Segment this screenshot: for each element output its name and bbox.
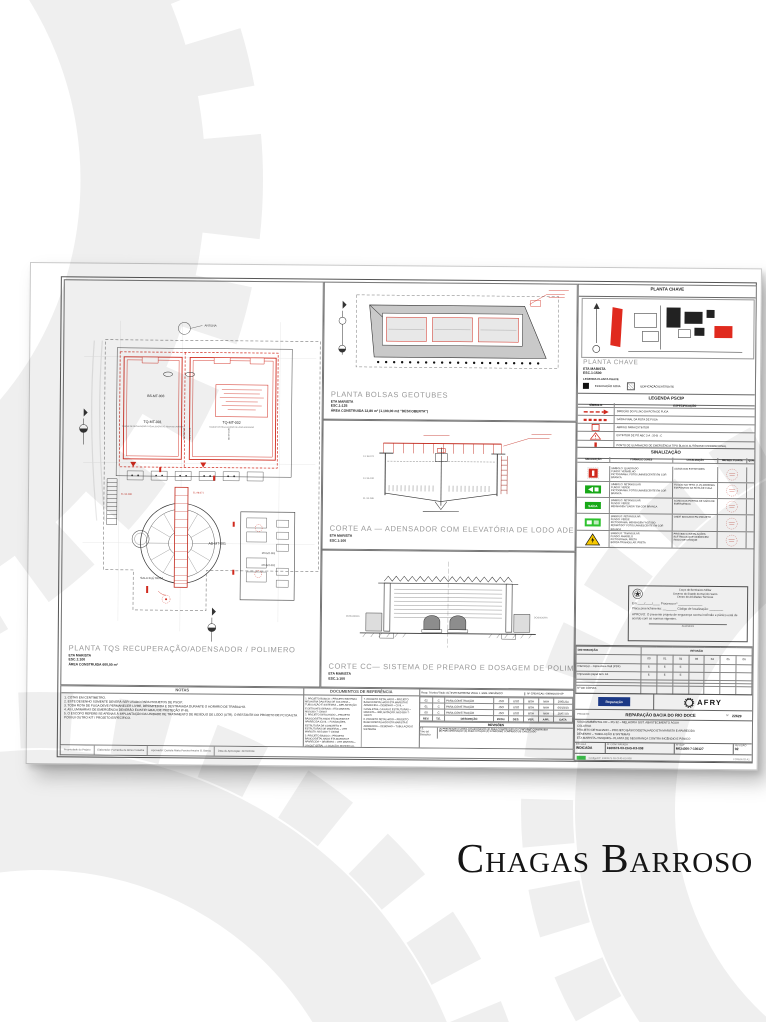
svg-text:EL 98.071: EL 98.071 <box>363 455 375 458</box>
legend-new-swatch <box>583 383 589 389</box>
page: BS-MT-003 TQ-MT-001 TANQUE DE DECANTAÇÃO… <box>0 0 766 1022</box>
sin-local-0: ACIMA DOS EXTINTORES <box>673 467 718 482</box>
red-callout <box>530 290 569 306</box>
planta-chave-title-block: PLANTA CHAVE ETA MARISTA ESC.1:1500 <box>583 359 639 376</box>
stamp-sign: Assinatura <box>649 624 727 629</box>
sin-rep-1 <box>718 483 747 498</box>
panel-corte-cc: DOSADORADOSADORA CORTE CC— SISTEMA DE PR… <box>320 550 575 690</box>
drawing-sheet: BS-MT-003 TQ-MT-001 TANQUE DE DECANTAÇÃO… <box>26 262 762 770</box>
label-ad: AD-MT-001 <box>209 542 226 546</box>
formato-text: FORMATO A1 <box>733 758 750 761</box>
prop-text: Propriedade do Projeto <box>61 745 95 754</box>
corte-aa-drawing: EL 98.071EL 96.100EL 94.286 <box>323 421 576 519</box>
pscip-spec-1: SAÍDA FINAL DA ROTA DE FUGA <box>615 417 755 424</box>
svg-text:DOSADORA: DOSADORA <box>346 615 360 618</box>
svg-text:BD-MT-002B: BD-MT-002B <box>228 428 230 440</box>
corte-aa-subtitle: ETA MARISTA ESC.1:100 <box>330 534 577 545</box>
planta-chave-title: PLANTA CHAVE <box>583 359 638 366</box>
label-antena: ANTENA <box>204 324 216 328</box>
final-exit-icon <box>578 416 615 423</box>
crest-icon <box>632 588 643 599</box>
label-tq1-desc: TANQUE DE DECANTAÇÃO E EQUALIZAÇÃO DE ÁG… <box>122 425 184 429</box>
docs-panel: DOCUMENTOS DE REFERÊNCIA 1. PROJETO BÁSI… <box>303 688 421 747</box>
sign-saida-icon: SAÍDA <box>577 498 610 513</box>
sin-col-2: LOCALIZAÇÃO <box>673 458 718 463</box>
red-note-box <box>216 385 268 417</box>
svg-text:BD-MT-001A: BD-MT-001A <box>182 427 185 439</box>
sin-rep-4 <box>718 532 747 548</box>
rev-value: 02 <box>735 747 751 751</box>
label-tq2-desc: TANQUE DE EQUALIZAÇÃO DE LODO ADENSADO <box>209 426 254 429</box>
sign-route-icon <box>577 482 610 497</box>
new-building-highlight <box>610 307 622 347</box>
corte-aa-title-block: CORTE AA — ADENSADOR COM ELEVATÓRIA DE L… <box>330 524 577 545</box>
revisoes-table: 02C PARA CONSTRUÇÃO JSOUSO BSHNKH 29/01/… <box>419 696 573 722</box>
planta-chave-map <box>581 298 755 360</box>
stairs <box>107 479 117 525</box>
legend-new-label: EDIFICAÇÃO NOVA <box>595 384 621 388</box>
svg-text:EL 94.286: EL 94.286 <box>363 497 375 500</box>
notas-panel: NOTAS 1. COTAS EM CENTÍMETRO. 2. ESTE DE… <box>61 686 304 746</box>
sign-extinguisher-icon <box>577 466 610 481</box>
extinguisher-marks <box>158 467 235 575</box>
chave-legend-title: LEGENDA PLANTA CHAVE <box>583 377 619 381</box>
sin-local-4: PRÓXIMO A INSTALAÇÕES ELÉTRICAS QUE OFER… <box>673 532 718 548</box>
stamp-org: Corpo de Bombeiros Militar Governo do Es… <box>646 588 744 600</box>
geotube-bags <box>386 317 518 342</box>
status-chip <box>577 756 586 760</box>
sin-col-1: FORMAS E CORES <box>610 457 673 463</box>
tank-tq-mt-001 <box>123 357 182 460</box>
brand-watermark-text: Chagas Barroso <box>455 834 755 882</box>
docs-col2: 7. PROJETO DETALHADO – PROJETO BÁSICO/DE… <box>361 696 419 750</box>
label-po1: PO-MT-001 <box>262 551 276 555</box>
sin-formas-1: SÍMBOLO: RETANGULAR FUNDO: VERDE PICTOGR… <box>610 482 673 498</box>
sin-col-4: QUANT. <box>747 458 754 463</box>
label-bs: BS-MT-003 <box>147 394 164 398</box>
building-outline <box>116 348 292 478</box>
bottom-strip: NOTAS 1. COTAS EM CENTÍMETRO. 2. ESTE DE… <box>60 685 575 749</box>
geotubes-title: PLANTA BOLSAS GEOTUBES <box>331 389 448 399</box>
chave-legend: EDIFICAÇÃO NOVA EDIFICAÇÃO EXISTENTE <box>583 382 674 391</box>
projeto-label: PROJETO <box>575 713 595 716</box>
label-el1: EL 94.286 <box>121 493 133 496</box>
section-marker-bottom <box>208 608 216 642</box>
label-po2: PO-MT-002 <box>262 563 276 567</box>
main-plan-subtitle: ETA MARISTA ESC.1:100 ÁREA CONSTRUIDA 60… <box>68 653 295 668</box>
sin-rep-2 <box>718 499 747 514</box>
panel-corte-aa: EL 98.071EL 96.100EL 94.286 CORTE AA — A… <box>322 420 577 552</box>
walkway <box>174 487 188 587</box>
geotubes-title-block: PLANTA BOLSAS GEOTUBES ETA MARISTA ESC.1… <box>331 389 448 413</box>
site-boundary <box>103 340 320 612</box>
new-area-highlight <box>714 326 732 338</box>
company-logo: AFRY <box>654 694 752 710</box>
stamp-body: APROVO: O presente projeto de segurança … <box>632 612 744 621</box>
label-sala: SALA ELÉTRICA <box>140 575 163 580</box>
contratada-value: 1960673-03-CHG-K3-008 <box>607 746 673 751</box>
panel-main-plan: BS-MT-003 TQ-MT-001 TANQUE DE DECANTAÇÃO… <box>60 279 324 687</box>
codigo-text: Código/Nº: 1960673-03-CHG-K3-008 <box>589 756 632 759</box>
tank-section <box>379 447 506 512</box>
sheet-frame: BS-MT-003 TQ-MT-001 TANQUE DE DECANTAÇÃO… <box>57 276 757 763</box>
project-name: REPARAÇÃO BACIA DO RIO DOCE <box>595 712 726 718</box>
aprovador-text: Aprovador: Daniela Maria Pereira Amorim … <box>148 746 215 756</box>
planta-chave-header: PLANTA CHAVE <box>579 285 756 299</box>
pscip-spec-0: DIREÇÃO DO FLUXO DA ROTA DE FUGA <box>615 409 755 416</box>
company-name: AFRY <box>697 698 722 707</box>
section-marker-left <box>79 408 87 444</box>
sinalizacao-table: SÍMBOLO: QUADRADO FUNDO: VERMELHO PICTOG… <box>577 466 755 550</box>
pscip-table: DIREÇÃO DO FLUXO DA ROTA DE FUGA SAÍDA F… <box>577 408 754 453</box>
afry-gear-icon <box>684 697 694 707</box>
svg-text:EL 96.100: EL 96.100 <box>363 477 375 480</box>
anchor-dots <box>377 361 539 365</box>
svg-text:BD-MT-001B: BD-MT-001B <box>189 427 191 439</box>
sap-value: M024300-7-130127 <box>676 747 732 751</box>
resp-tecnico: Resp. Técnico/Título: ALTEVIR BARBOSA VI… <box>419 691 524 695</box>
client-logo: Reparação <box>598 697 629 706</box>
planta-chave-subtitle: ETA MARISTA ESC.1:1500 <box>583 367 638 376</box>
pump-building <box>240 512 295 600</box>
main-plan-title-block: PLANTA TQS RECUPERAÇÃO/ADENSADOR / POLIM… <box>68 643 295 668</box>
crea-number: Nº CREA/CAU: 0986920/20-SP <box>524 692 573 695</box>
equipment <box>422 615 468 632</box>
escala-value: INDICADA <box>576 746 604 750</box>
corte-cc-title-block: CORTE CC— SISTEMA DE PREPARO E DOSAGEM D… <box>328 662 575 683</box>
sin-rep-3 <box>718 515 747 531</box>
stamp-line2: Placa preenchimento: ________ Código de … <box>632 606 744 611</box>
sin-col-3: REPRES. PLANTA <box>718 458 747 463</box>
sinalizacao-colheader: SINALIZAÇÃO FORMAS E CORES LOCALIZAÇÃO R… <box>577 457 754 465</box>
data-aprovacao-text: Data de Aprovação: 31/01/2024 <box>215 750 258 753</box>
sin-formas-2: SÍMBOLO: RETANGULAR FUNDO: VERDE MENSAGE… <box>610 498 673 514</box>
svg-text:SAÍDA: SAÍDA <box>588 503 598 508</box>
distribuicao-table: DISTRIBUIÇÃO REVISÃO 0001 0203 0405 06 I… <box>575 645 752 696</box>
sign-electrical-warning-icon <box>577 531 610 547</box>
flow-direction-icon <box>578 408 615 415</box>
sin-formas-3: SÍMBOLO: RETANGULAR FUNDO: VERDE PICTOGR… <box>610 514 673 531</box>
section-marker <box>339 301 347 355</box>
right-column: PLANTA CHAVE <box>574 284 757 763</box>
extinguisher-shelter-icon <box>578 424 615 431</box>
geotubes-subtitle: ETA MARISTA ESC.1:125 ÁREA CONSTRUIDA 12… <box>331 399 448 413</box>
pscip-spec-2: ABRIGO PARA EXTINTOR <box>615 425 755 432</box>
fire-dept-stamp: Corpo de Bombeiros Militar Governo do Es… <box>628 585 748 642</box>
te-line2: (B) PARA APROVAÇÃO (D) PARA COTAÇÃO (F) … <box>439 731 572 734</box>
project-number: 22629 <box>732 714 752 718</box>
revisoes-panel: Resp. Técnico/Título: ALTEVIR BARBOSA VI… <box>419 689 574 748</box>
corte-cc-drawing: DOSADORADOSADORA <box>322 551 575 657</box>
sign-acesso-icon <box>577 514 610 530</box>
main-plan-drawing: BS-MT-003 TQ-MT-001 TANQUE DE DECANTAÇÃO… <box>61 280 323 686</box>
sin-local-3: ONDE INDICADO EM PROJETO <box>673 515 718 531</box>
elaborador-text: Elaborador: Fernanda de Abreu Colardia <box>94 746 148 755</box>
sin-formas-0: SÍMBOLO: QUADRADO FUNDO: VERMELHO PICTOG… <box>610 466 673 482</box>
panel-geotubes: PLANTA BOLSAS GEOTUBES ETA MARISTA ESC.1… <box>323 282 578 422</box>
geotubes-drawing <box>324 283 577 385</box>
legend-existing-swatch <box>626 382 634 390</box>
sin-local-2: ACIMA DAS PORTAS DE SAÍDA DE EMERGÊNCIA <box>673 499 718 514</box>
label-tq1: TQ-MT-001 <box>143 420 161 424</box>
te-label: T.E. TIPO DE EMISSÃO: <box>419 728 438 738</box>
label-tq2: TQ-MT-002 <box>222 421 240 425</box>
sin-local-1: FIXADO NO TETO (2,15) PAREDES EM PONTOS … <box>673 483 718 498</box>
extinguisher-abc-icon <box>577 432 614 440</box>
north-arrow <box>593 303 600 353</box>
sin-col-0: SINALIZAÇÃO <box>577 457 610 462</box>
pscip-spec-3: EXTINTOR DE PÓ ABC 2-A : 20-B : C <box>614 433 754 440</box>
project-description: SOCIOAMBIENTAL CD – PG 32 – MELHORIA SIS… <box>575 720 752 745</box>
tank-tq-mt-002 <box>189 357 276 460</box>
corte-cc-subtitle: ETA MARISTA ESC.1:100 <box>328 672 575 683</box>
svg-text:DOSADORA: DOSADORA <box>534 616 548 619</box>
title-block: Reparação AFRY PROJETO REPARAÇÃO BACI <box>575 693 753 762</box>
sin-formas-4: SÍMBOLO: TRIANGULAR FUNDO: AMARELO PICTO… <box>610 531 673 548</box>
sin-rep-0 <box>718 467 747 482</box>
legend-existing-label: EDIFICAÇÃO EXISTENTE <box>641 384 674 388</box>
pscip-col-simbolo: SÍMBOLO <box>578 403 615 407</box>
notas-text: 1. COTAS EM CENTÍMETRO. 2. ESTE DESENHO … <box>61 693 303 723</box>
guardrail <box>383 433 551 454</box>
label-el2: EL 98.071 <box>193 491 205 494</box>
ladder <box>501 456 507 494</box>
docs-col1: 1. PROJETO BÁSICO – PROJETO BIM PARA MEL… <box>303 695 362 749</box>
